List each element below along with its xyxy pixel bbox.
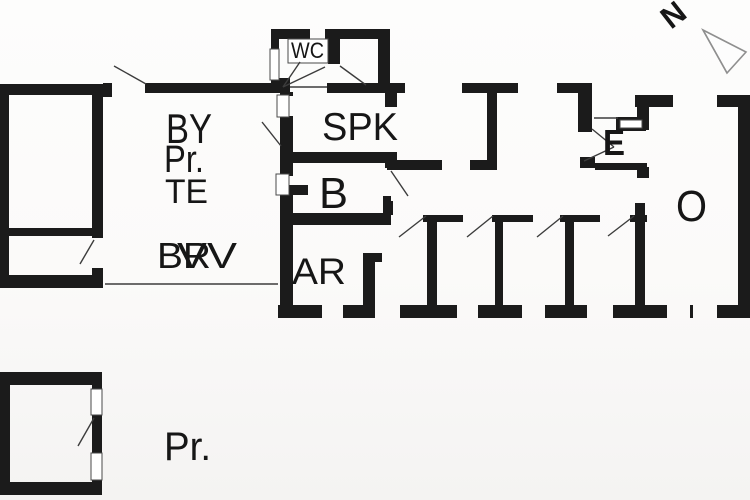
north-compass: N	[654, 0, 746, 73]
door-swing-line	[467, 216, 493, 237]
door-swing-line	[608, 216, 634, 236]
north-arrow-icon	[703, 30, 746, 73]
wall-segment	[578, 83, 592, 132]
room-label-e: E	[603, 122, 625, 163]
wall-segment	[387, 160, 442, 170]
wall-segment	[145, 83, 290, 93]
window-opening	[91, 389, 102, 415]
wall-segment	[385, 83, 397, 107]
wall-segment	[462, 83, 518, 93]
wall-segment	[278, 305, 322, 318]
wall-segment	[92, 84, 103, 238]
wall-segment	[283, 152, 387, 163]
door-swing-line	[78, 418, 94, 446]
wall-segment	[378, 29, 390, 92]
door-swing-line	[80, 240, 94, 264]
wall-segment	[0, 482, 102, 495]
room-label-ar: AR	[292, 251, 346, 292]
door-swing-line	[340, 66, 366, 85]
wall-segment	[565, 215, 574, 305]
window-opening	[91, 453, 102, 480]
wall-segment	[613, 305, 667, 318]
north-label: N	[654, 0, 693, 36]
wall-segment	[383, 201, 393, 215]
wall-segment	[9, 228, 97, 236]
wall-segment	[738, 95, 750, 318]
door-swing-line	[114, 66, 146, 84]
wall-segment	[478, 305, 522, 318]
window-opening	[276, 174, 289, 195]
wall-segment	[328, 38, 340, 64]
wall-segment	[288, 185, 308, 195]
wall-segment	[0, 275, 103, 288]
wall-segment	[92, 268, 103, 288]
wall-segment	[0, 84, 103, 95]
window-opening	[270, 49, 279, 80]
wall-segment	[343, 305, 375, 318]
wall-segment	[0, 372, 102, 385]
wall-segment	[0, 372, 10, 495]
wall-segment	[470, 160, 497, 170]
wall-segment	[363, 253, 382, 262]
wall-segment	[400, 305, 457, 318]
wall-segment	[103, 83, 112, 97]
door-swing-line	[391, 171, 408, 196]
door-swing-line	[262, 122, 281, 146]
floor-plan-drawing: BYPr.TEBRVVARSPKBWCEOPr. N	[0, 0, 750, 500]
wall-segment	[92, 478, 102, 495]
floor-plan-canvas: BYPr.TEBRVVARSPKBWCEOPr. N	[0, 0, 750, 500]
room-label-wc: WC	[291, 38, 324, 63]
wall-segment	[427, 215, 437, 305]
wall-segment	[690, 305, 693, 318]
wall-segment	[487, 92, 497, 160]
window-opening	[277, 95, 289, 117]
wall-segment	[92, 414, 102, 456]
walls-layer	[0, 29, 750, 495]
wall-segment	[271, 29, 279, 49]
room-label-spk: SPK	[322, 106, 398, 149]
room-label-te: TE	[165, 173, 208, 211]
door-swing-line	[537, 216, 563, 237]
wall-segment	[0, 84, 9, 288]
annex-label-pr: Pr.	[164, 425, 211, 469]
room-label-vv: VV	[177, 235, 237, 276]
door-swing-line	[399, 216, 426, 237]
wall-segment	[280, 116, 293, 176]
wall-segment	[545, 305, 587, 318]
wall-segment	[495, 215, 503, 305]
room-label-o: O	[676, 182, 707, 231]
wall-segment	[635, 203, 645, 305]
room-label-b: B	[319, 169, 348, 218]
wall-segment	[637, 167, 649, 178]
